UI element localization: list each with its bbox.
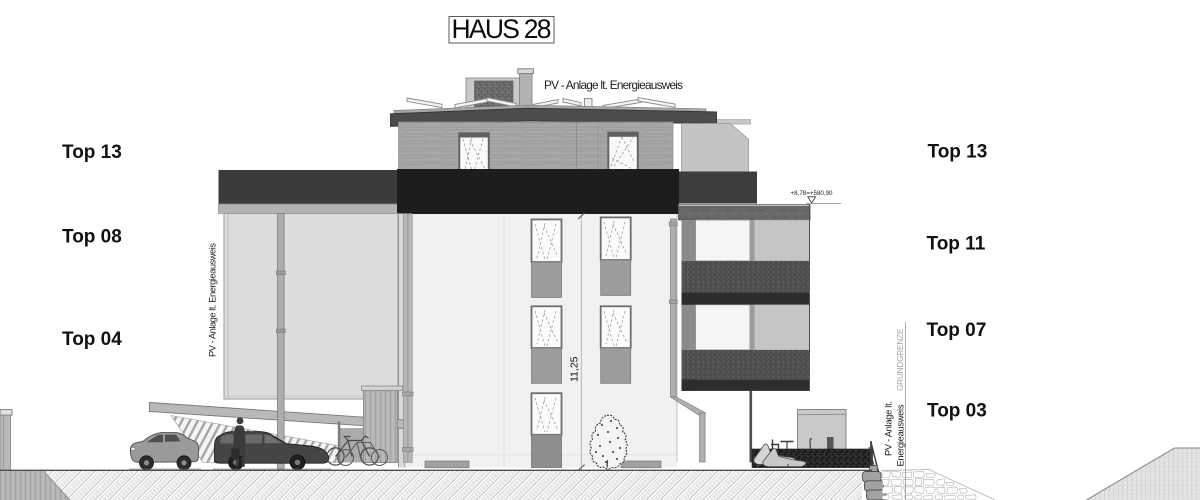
svg-text:PV - Anlage lt. Energieausweis: PV - Anlage lt. Energieausweis xyxy=(208,243,218,357)
svg-text:11,25: 11,25 xyxy=(569,356,581,382)
svg-text:Top 04: Top 04 xyxy=(62,329,122,350)
svg-text:PV - Anlage lt. Energieausweis: PV - Anlage lt. Energieausweis xyxy=(544,78,683,92)
svg-text:Energieausweis: Energieausweis xyxy=(896,404,906,466)
svg-text:Top 03: Top 03 xyxy=(927,401,987,422)
svg-text:Top 08: Top 08 xyxy=(62,227,122,248)
svg-text:Top 13: Top 13 xyxy=(928,142,988,163)
svg-text:HAUS 28: HAUS 28 xyxy=(452,14,552,44)
svg-text:Top 13: Top 13 xyxy=(62,142,122,163)
svg-text:Top 11: Top 11 xyxy=(927,234,986,255)
svg-text:PV - Anlage lt.: PV - Anlage lt. xyxy=(884,401,894,456)
svg-text:Top 07: Top 07 xyxy=(927,320,987,341)
svg-text:GRUNDGRENZE: GRUNDGRENZE xyxy=(896,328,905,391)
svg-text:+8,78=+580,90: +8,78=+580,90 xyxy=(791,190,834,197)
